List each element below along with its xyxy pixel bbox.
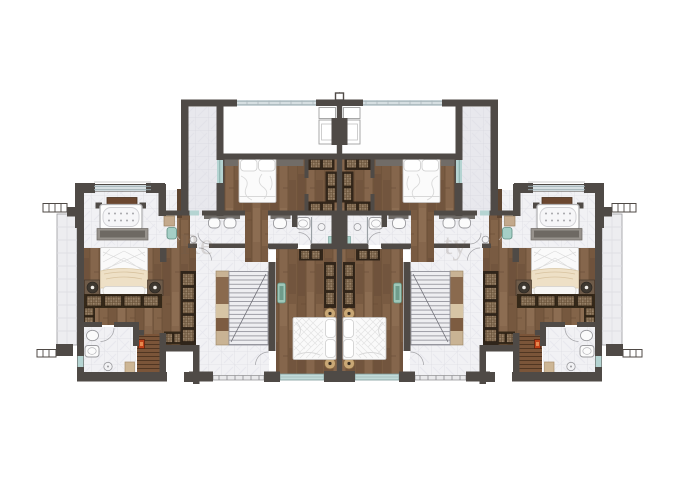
svg-text:Re: Re (180, 228, 213, 261)
svg-text:ty: ty (444, 228, 467, 261)
